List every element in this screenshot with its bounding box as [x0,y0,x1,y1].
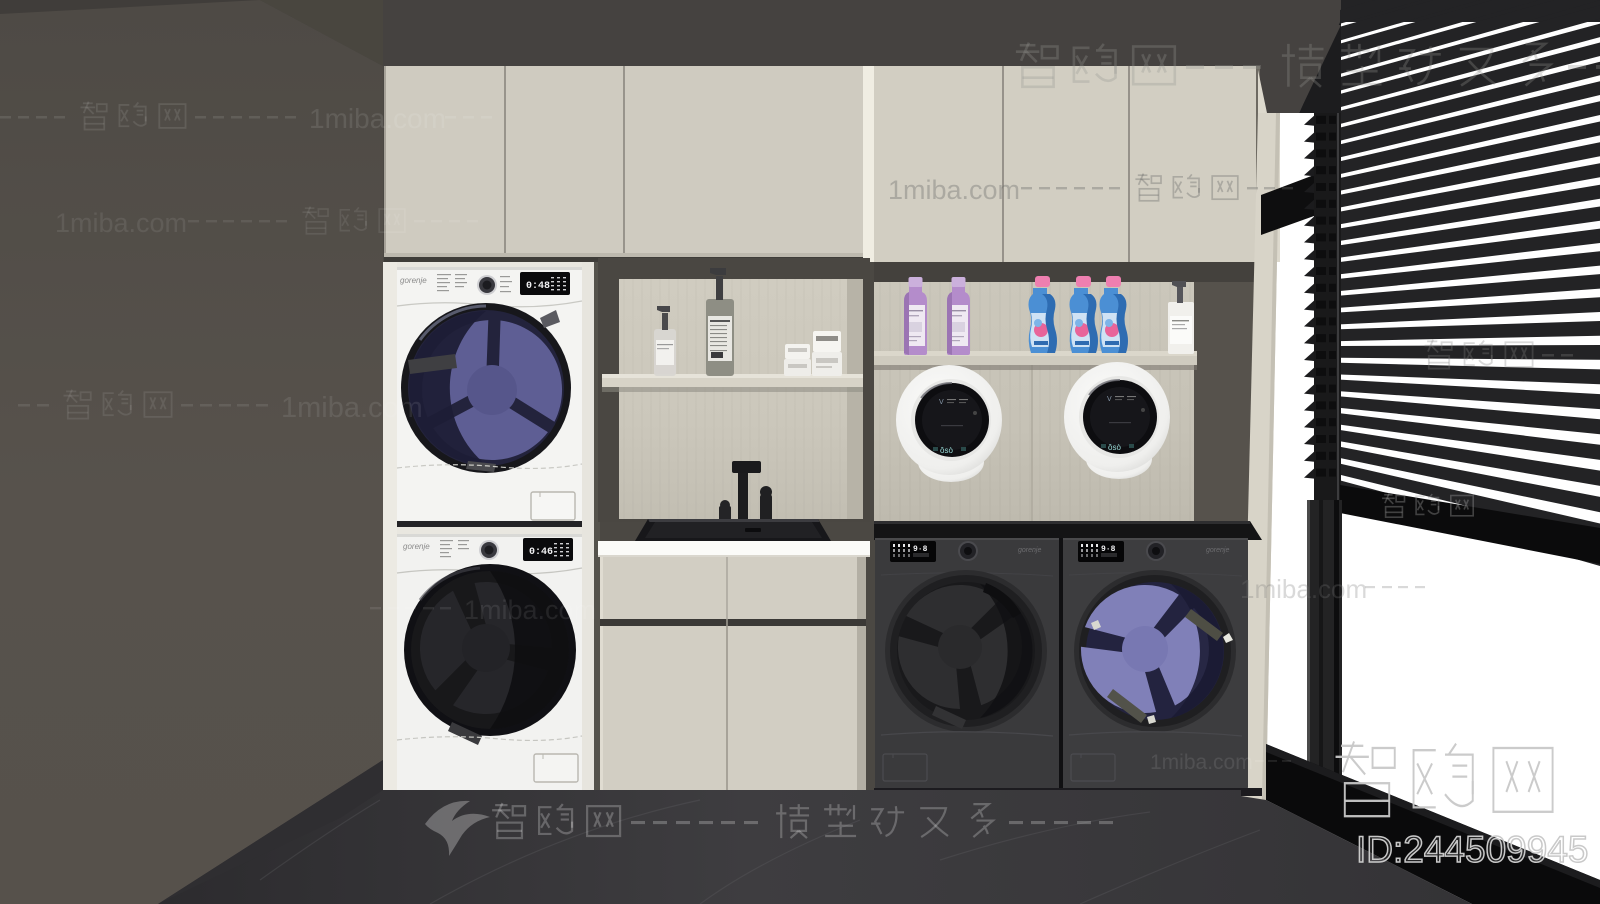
svg-text:V: V [939,399,944,406]
svg-text:gorenje: gorenje [1018,547,1041,554]
svg-text:0:48: 0:48 [526,281,550,292]
svg-text:0:46: 0:46 [529,547,553,558]
svg-text:1miba.com: 1miba.com [281,392,423,424]
svg-text:gorenje: gorenje [1206,547,1229,554]
svg-text:1miba.com: 1miba.com [309,103,446,134]
svg-text:gorenje: gorenje [403,542,430,551]
svg-text:9·8: 9·8 [913,545,928,554]
svg-text:1miba.com: 1miba.com [1240,574,1367,604]
svg-text:1miba.com: 1miba.com [888,175,1020,205]
svg-text:1miba.com: 1miba.com [464,595,596,625]
svg-text:V: V [1107,396,1112,403]
svg-text:1miba.com: 1miba.com [55,208,187,238]
svg-text:ôsò: ôsò [940,446,953,455]
svg-text:1miba.com: 1miba.com [1150,751,1253,774]
svg-text:ID:244509945: ID:244509945 [1356,829,1588,870]
svg-text:9·8: 9·8 [1101,545,1116,554]
svg-text:gorenje: gorenje [400,276,427,285]
svg-text:ôsò: ôsò [1108,443,1121,452]
